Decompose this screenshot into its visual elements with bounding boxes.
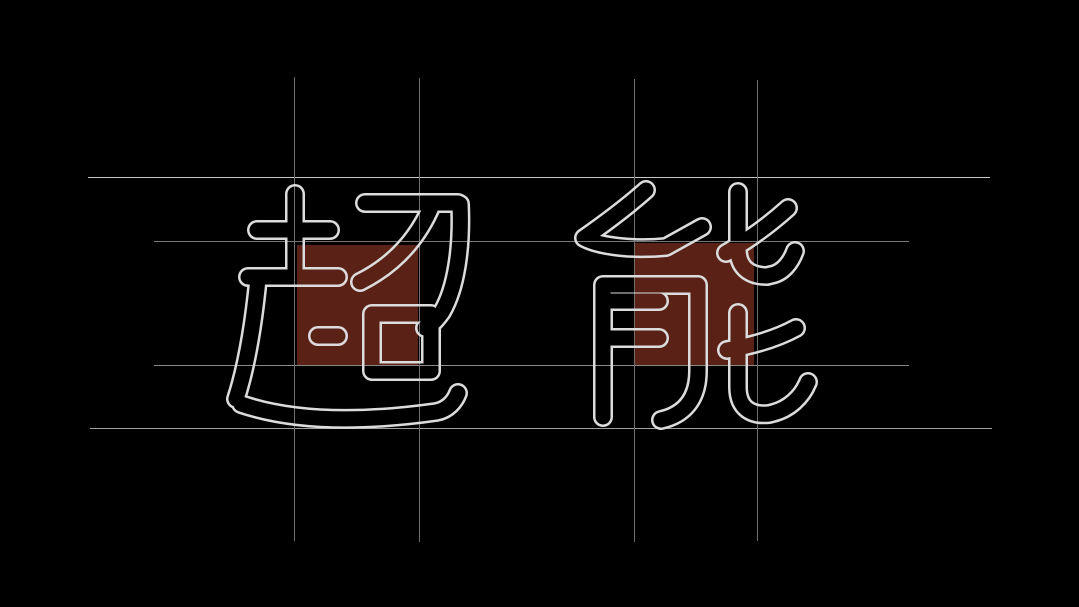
- title-outline-fill: [0, 0, 1079, 607]
- title-frame: 超能: [0, 0, 1079, 607]
- title-text-outline-svg: [0, 0, 1079, 607]
